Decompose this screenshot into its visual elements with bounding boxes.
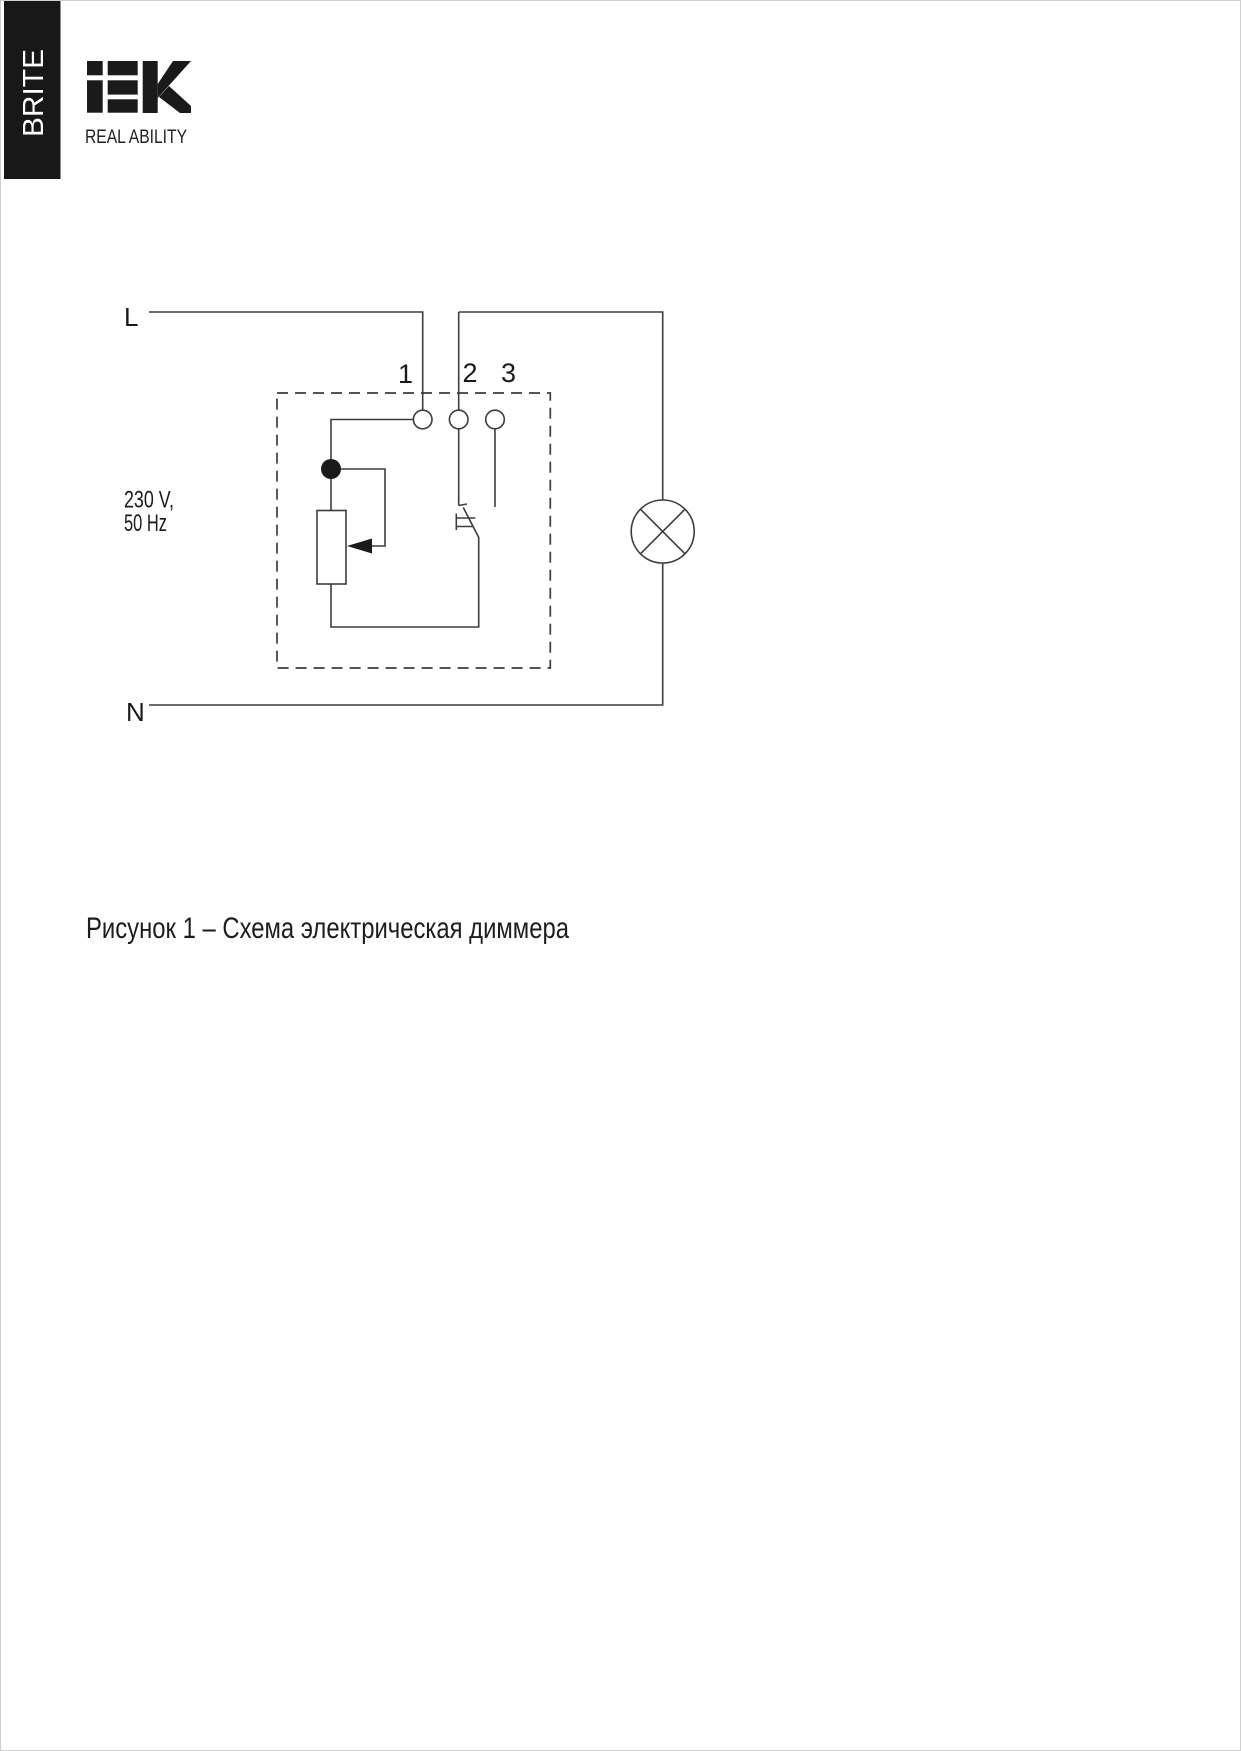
figure-caption: Рисунок 1 – Схема электрическая диммера	[86, 912, 569, 945]
iek-logo-e-bar-bottom	[108, 99, 138, 112]
push-actuator-icon	[456, 514, 475, 531]
line-l-label: L	[124, 302, 138, 332]
potentiometer-bottom-wire	[331, 538, 479, 627]
page-canvas: BRITE REAL ABILITY	[1, 1, 1241, 1751]
iek-logo-i-dot	[87, 61, 103, 75]
terminal1-inner-wire	[331, 420, 413, 511]
terminal-1-label: 1	[398, 359, 413, 389]
lamp-branch-wire	[459, 312, 663, 500]
iek-logo-e-bar-top	[108, 61, 138, 75]
junction-dot	[321, 459, 341, 479]
neutral-wire	[149, 563, 663, 705]
switch-lever	[463, 508, 479, 539]
wiper-tap-wire	[341, 469, 385, 546]
switch-contact-tick	[459, 504, 467, 506]
iek-logo-i-stem	[87, 80, 103, 112]
brite-banner-label: BRITE	[18, 49, 50, 137]
wiper-arrow	[347, 539, 372, 554]
iek-logo	[87, 61, 191, 113]
iek-logo-k-stem	[143, 61, 158, 113]
potentiometer-body	[317, 511, 346, 585]
terminal-2-circle	[449, 410, 468, 429]
document-page: BRITE REAL ABILITY	[0, 0, 1241, 1751]
terminal-3-circle	[486, 410, 505, 429]
line-l-wire	[149, 312, 423, 410]
terminal-3-label: 3	[501, 358, 516, 388]
dimmer-schematic	[149, 312, 694, 705]
terminal-1-circle	[413, 410, 432, 429]
logo-tagline: REAL ABILITY	[85, 126, 187, 148]
neutral-n-label: N	[126, 697, 145, 727]
terminal-2-label: 2	[462, 358, 477, 388]
voltage-label-line2: 50 Hz	[124, 510, 167, 537]
iek-logo-e-bar-mid	[108, 80, 138, 94]
